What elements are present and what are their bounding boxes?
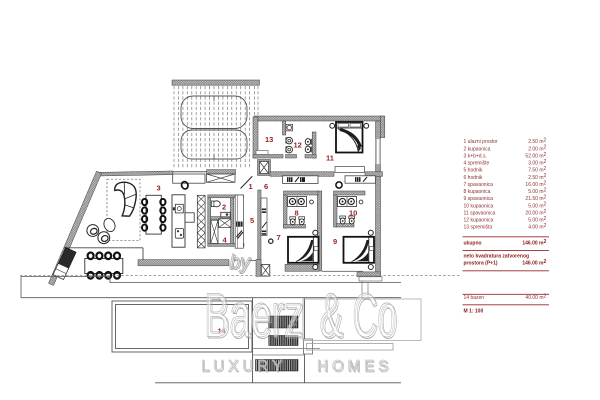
svg-text:9: 9 <box>333 237 337 246</box>
svg-text:2: 2 <box>544 173 547 179</box>
svg-text:2: 2 <box>544 138 547 144</box>
svg-text:M 1: 100: M 1: 100 <box>464 309 484 315</box>
svg-text:2: 2 <box>544 216 547 222</box>
svg-text:Baerz: Baerz <box>204 282 303 351</box>
svg-text:3: 3 <box>157 184 161 193</box>
svg-text:11 spavaonica: 11 spavaonica <box>464 210 496 216</box>
svg-text:2: 2 <box>544 202 547 208</box>
svg-text:7.50 m: 7.50 m <box>528 168 543 174</box>
svg-text:8 kupaonica: 8 kupaonica <box>464 189 491 195</box>
svg-text:2.50 m: 2.50 m <box>528 139 543 145</box>
svg-text:2: 2 <box>544 187 547 193</box>
svg-text:9 spavaonica: 9 spavaonica <box>464 196 494 202</box>
svg-text:146.00 m: 146.00 m <box>522 261 544 267</box>
svg-text:7 spavaonica: 7 spavaonica <box>464 182 494 188</box>
svg-text:2: 2 <box>544 223 547 229</box>
svg-text:5.00 m: 5.00 m <box>528 218 543 224</box>
svg-text:11: 11 <box>326 154 334 163</box>
svg-text:3.00 m: 3.00 m <box>528 161 543 167</box>
svg-text:6 hodnik: 6 hodnik <box>464 175 483 181</box>
svg-text:14 bazen: 14 bazen <box>464 295 485 301</box>
svg-text:4.00 m: 4.00 m <box>528 225 543 231</box>
svg-text:4 spremište: 4 spremište <box>464 161 490 167</box>
svg-text:2: 2 <box>222 203 226 212</box>
svg-text:2: 2 <box>544 239 547 245</box>
svg-text:5.00 m: 5.00 m <box>528 203 543 209</box>
svg-text:10 kupaonica: 10 kupaonica <box>464 203 494 209</box>
svg-text:by: by <box>230 252 252 273</box>
svg-text:20.00 m: 20.00 m <box>525 210 543 216</box>
svg-text:neto kvadratura zatvorenog: neto kvadratura zatvorenog <box>464 253 530 259</box>
svg-text:10: 10 <box>349 209 357 218</box>
svg-text:2: 2 <box>544 195 547 201</box>
svg-text:21.50 m: 21.50 m <box>525 196 543 202</box>
svg-text:6: 6 <box>264 182 268 191</box>
svg-text:2: 2 <box>544 209 547 215</box>
svg-text:2 kupaonica: 2 kupaonica <box>464 146 491 152</box>
svg-text:7: 7 <box>277 233 281 242</box>
svg-text:2: 2 <box>544 159 547 165</box>
svg-text:13: 13 <box>265 135 273 144</box>
svg-text:2.00 m: 2.00 m <box>528 146 543 152</box>
svg-text:1: 1 <box>249 182 253 191</box>
svg-text:12: 12 <box>294 141 302 150</box>
svg-text:5.00 m: 5.00 m <box>528 189 543 195</box>
svg-text:& Co: & Co <box>320 282 397 351</box>
svg-text:L U X U R Y: L U X U R Y <box>201 358 282 375</box>
svg-text:2: 2 <box>544 259 547 265</box>
svg-text:146.00 m: 146.00 m <box>522 240 544 246</box>
svg-text:5: 5 <box>250 216 254 225</box>
svg-text:16.00 m: 16.00 m <box>525 182 543 188</box>
svg-text:13 spremišta: 13 spremišta <box>464 225 493 231</box>
svg-text:2: 2 <box>544 294 547 300</box>
svg-text:1 ulazni prostor: 1 ulazni prostor <box>464 139 499 145</box>
svg-text:40.00 m: 40.00 m <box>525 295 543 301</box>
svg-text:H O M E S: H O M E S <box>317 358 388 375</box>
svg-text:2.50 m: 2.50 m <box>528 175 543 181</box>
svg-text:2: 2 <box>544 152 547 158</box>
svg-text:2: 2 <box>544 180 547 186</box>
svg-text:2: 2 <box>544 166 547 172</box>
svg-text:ukupno: ukupno <box>464 240 482 246</box>
svg-text:prostora (P+1): prostora (P+1) <box>464 261 498 267</box>
svg-text:2: 2 <box>544 145 547 151</box>
svg-text:12 kupaonica: 12 kupaonica <box>464 218 494 224</box>
svg-text:3 k+b+d.s.: 3 k+b+d.s. <box>464 153 487 159</box>
svg-text:5 hodnik: 5 hodnik <box>464 168 483 174</box>
svg-text:8: 8 <box>295 209 299 218</box>
svg-text:52.00 m: 52.00 m <box>525 153 543 159</box>
